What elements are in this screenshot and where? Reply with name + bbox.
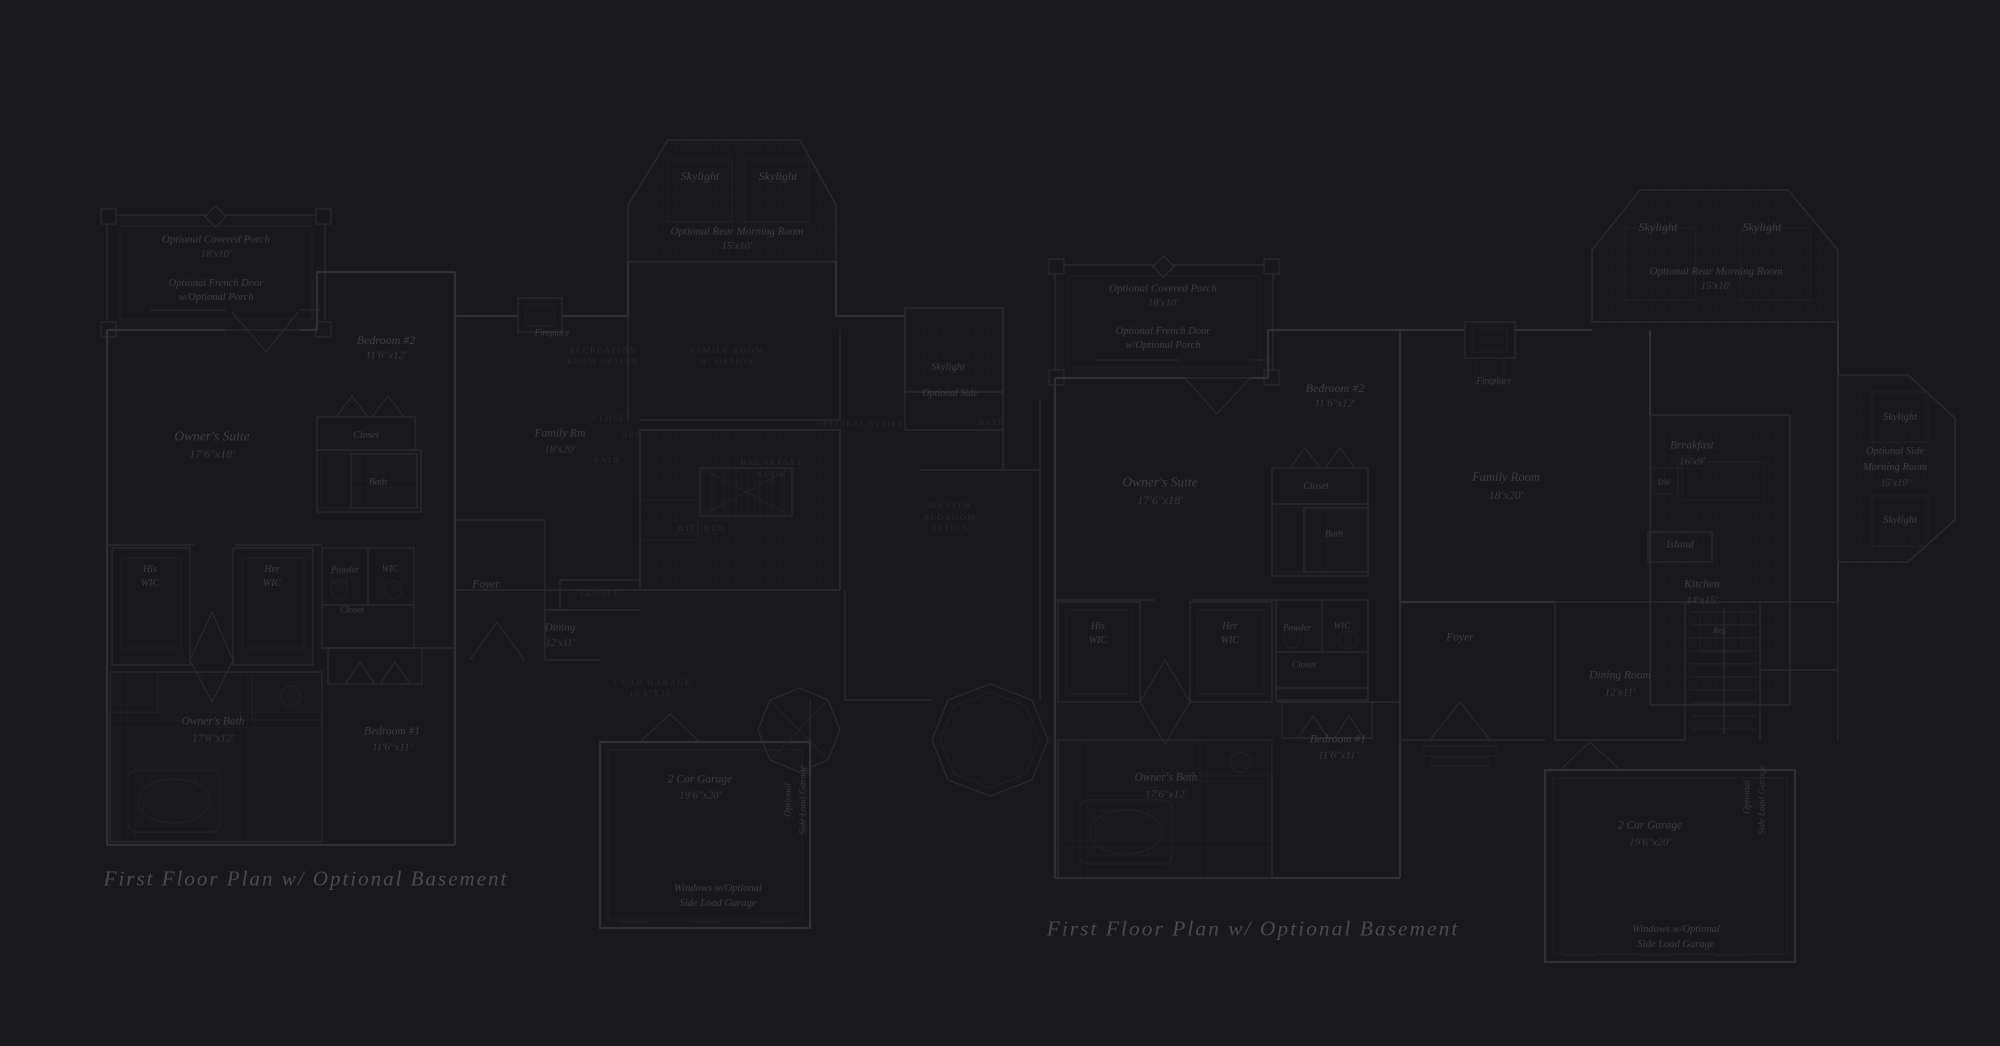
room-label: WIC — [263, 579, 281, 589]
overlay-label: ROOM OPTION — [567, 358, 639, 366]
overlay-label: CLOSET — [580, 590, 619, 598]
room-label: Owner's Suite — [174, 429, 249, 443]
room-label: Skylight — [931, 363, 965, 374]
dimension-label: 17'6"x18' — [189, 448, 235, 460]
room-label: WIC — [382, 565, 399, 574]
dimension-label: 11'6"x11' — [1318, 751, 1358, 762]
room-label: Optional Side — [1866, 447, 1924, 458]
right-plan-linework — [1049, 190, 1955, 962]
room-label: Bath — [369, 478, 387, 488]
room-label: Foyer — [472, 579, 499, 591]
right-his-wic — [1058, 602, 1140, 702]
left-powder-block — [322, 548, 414, 648]
room-label: WIC — [141, 579, 159, 589]
left-master-bay — [932, 684, 1048, 796]
dimension-label: 16'x9' — [1679, 457, 1705, 468]
left-breakfast-area — [640, 430, 840, 590]
room-label: Optional Covered Porch — [162, 235, 270, 246]
overlay-label: OPTIONAL STAIRS — [817, 420, 904, 428]
overlay-label: 2 CAR GARAGE — [612, 678, 691, 687]
room-label: Closet — [1292, 661, 1316, 671]
room-label: Owner's Bath — [1135, 772, 1198, 784]
room-label: Island — [1666, 540, 1694, 551]
room-label: Side Load Garage — [1758, 765, 1768, 835]
right-bath — [1272, 504, 1368, 576]
dimension-label: 11'6"x11' — [372, 743, 412, 754]
room-label: Closet — [1303, 482, 1329, 492]
right-owners-bath — [1058, 740, 1272, 878]
room-label: Bath — [1325, 530, 1343, 540]
overlay-label: BEDROOM — [923, 513, 976, 522]
overlay-label: CLOSET — [592, 415, 631, 423]
room-label: Owner's Suite — [1122, 475, 1197, 489]
dimension-label: 14'x15' — [1686, 596, 1718, 607]
room-label: Skylight — [1883, 516, 1917, 527]
room-label: Optional — [1743, 780, 1753, 814]
room-label: Optional French Door — [1116, 327, 1211, 338]
overlay-label: BATH — [594, 457, 621, 465]
room-label: Foyer — [1446, 632, 1473, 644]
room-label: Optional French Door — [169, 279, 264, 290]
blueprint-canvas: First Floor Plan w/ Optional Basement Fi… — [0, 0, 2000, 1046]
room-label: 2 Car Garage — [668, 774, 733, 786]
left-bedroom1 — [322, 648, 455, 684]
dimension-label: 18'x20' — [1489, 489, 1523, 501]
left-plan-linework — [101, 140, 1048, 928]
room-label: Skylight — [1883, 413, 1917, 424]
room-label: DW — [1658, 479, 1670, 487]
room-label: Family Room — [1472, 471, 1540, 484]
room-label: WIC — [1089, 636, 1107, 646]
room-label: Dining — [545, 623, 576, 634]
room-label: Skylight — [681, 170, 720, 182]
room-label: Fireplace — [535, 329, 570, 338]
room-label: Optional — [784, 783, 794, 817]
room-label: Skylight — [1743, 221, 1782, 233]
room-label: Powder — [1283, 624, 1311, 633]
dimension-label: 17'6"x12' — [192, 734, 234, 745]
dimension-label: 12'x11' — [545, 639, 574, 650]
room-label: w/Optional Porch — [1125, 341, 1200, 352]
room-label: Fireplace — [1477, 377, 1512, 386]
room-label: Her — [1222, 622, 1238, 632]
room-label: Bedroom #1 — [364, 726, 420, 738]
left-side-skylight — [905, 308, 1003, 392]
room-label: Breakfast — [1670, 440, 1714, 452]
room-label: Dining Room — [1589, 670, 1651, 682]
dimension-label: 15'x10' — [1881, 479, 1910, 489]
room-label: Skylight — [759, 170, 798, 182]
room-label: Side Load Garage — [1638, 940, 1715, 951]
left-owners-bath — [110, 672, 322, 842]
overlay-label: NOOK — [757, 470, 788, 479]
room-label: Family Rm — [535, 428, 586, 440]
room-label: Ref. — [1713, 626, 1726, 635]
dimension-label: 11'6"x12' — [366, 351, 407, 362]
room-label: Skylight — [1639, 221, 1678, 233]
dimension-label: 18'x10' — [1148, 299, 1178, 310]
left-bedroom2-closet — [317, 396, 415, 450]
room-label: Optional Covered Porch — [1109, 284, 1217, 295]
dimension-label: 18'x10' — [201, 250, 231, 261]
room-label: Windows w/Optional — [1632, 925, 1720, 936]
dimension-label: 18'x20' — [544, 445, 576, 456]
room-label: Side Load Garage — [799, 765, 809, 835]
room-label: 2 Car Garage — [1618, 820, 1683, 832]
overlay-label: MASTER — [928, 501, 971, 510]
room-label: Bedroom #2 — [357, 334, 416, 346]
room-label: Windows w/Optional — [674, 884, 762, 895]
right-her-wic — [1190, 602, 1272, 702]
dimension-label: 17'6"x18' — [1137, 494, 1183, 506]
dimension-label: 17'6"x12' — [1145, 790, 1187, 801]
overlay-label: RECREATION — [569, 346, 637, 355]
overlay-label: BREAKFAST — [741, 458, 803, 467]
overlay-label: FAMILY ROOM — [690, 346, 765, 355]
overlay-label: BATH — [979, 419, 1006, 427]
dimension-label: 19'6"x20' — [1629, 838, 1671, 849]
room-label: Morning Room — [1863, 463, 1927, 474]
dimension-label: 11'6"x12' — [1315, 399, 1356, 410]
room-label: WIC — [1334, 622, 1351, 631]
right-morning-room — [1592, 190, 1838, 322]
room-label: His — [143, 565, 157, 575]
overlay-label: KITCHEN — [678, 524, 726, 533]
room-label: w/Optional Porch — [178, 293, 253, 304]
room-label: Bedroom #1 — [1310, 734, 1366, 746]
dimension-label: 15'x10' — [722, 242, 752, 253]
overlay-label: 19'6"X20' — [629, 690, 674, 698]
room-label: Bedroom #2 — [1306, 382, 1365, 394]
dimension-label: 19'6"x20' — [679, 791, 721, 802]
left-garage — [600, 714, 810, 928]
room-label: Optional Rear Morning Room — [671, 227, 804, 238]
room-label: Closet — [340, 606, 364, 616]
plan-title-left: First Floor Plan w/ Optional Basement — [104, 867, 509, 892]
overlay-label: DEN — [622, 432, 643, 440]
left-front-bay — [758, 688, 840, 772]
room-label: Owner's Bath — [182, 716, 245, 728]
right-kitchen — [1648, 415, 1790, 705]
room-label: Optional Rear Morning Room — [1650, 267, 1783, 278]
overlay-label: W/ OPTION — [700, 358, 755, 366]
room-label: Powder — [331, 566, 359, 575]
right-bedroom2-closet — [1272, 448, 1368, 504]
room-label: Side Load Garage — [680, 899, 757, 910]
right-powder-block — [1276, 600, 1368, 700]
room-label: Her — [264, 565, 280, 575]
room-label: Optional Side — [922, 389, 977, 399]
plan-title-right: First Floor Plan w/ Optional Basement — [1047, 917, 1460, 942]
room-label: WIC — [1221, 636, 1239, 646]
overlay-label: OPTION — [931, 525, 969, 533]
dimension-label: 12'x11' — [1605, 688, 1636, 699]
room-label: Kitchen — [1684, 579, 1720, 591]
dimension-label: 15'x10' — [1701, 282, 1731, 293]
room-label: His — [1091, 622, 1105, 632]
room-label: Closet — [353, 431, 379, 441]
